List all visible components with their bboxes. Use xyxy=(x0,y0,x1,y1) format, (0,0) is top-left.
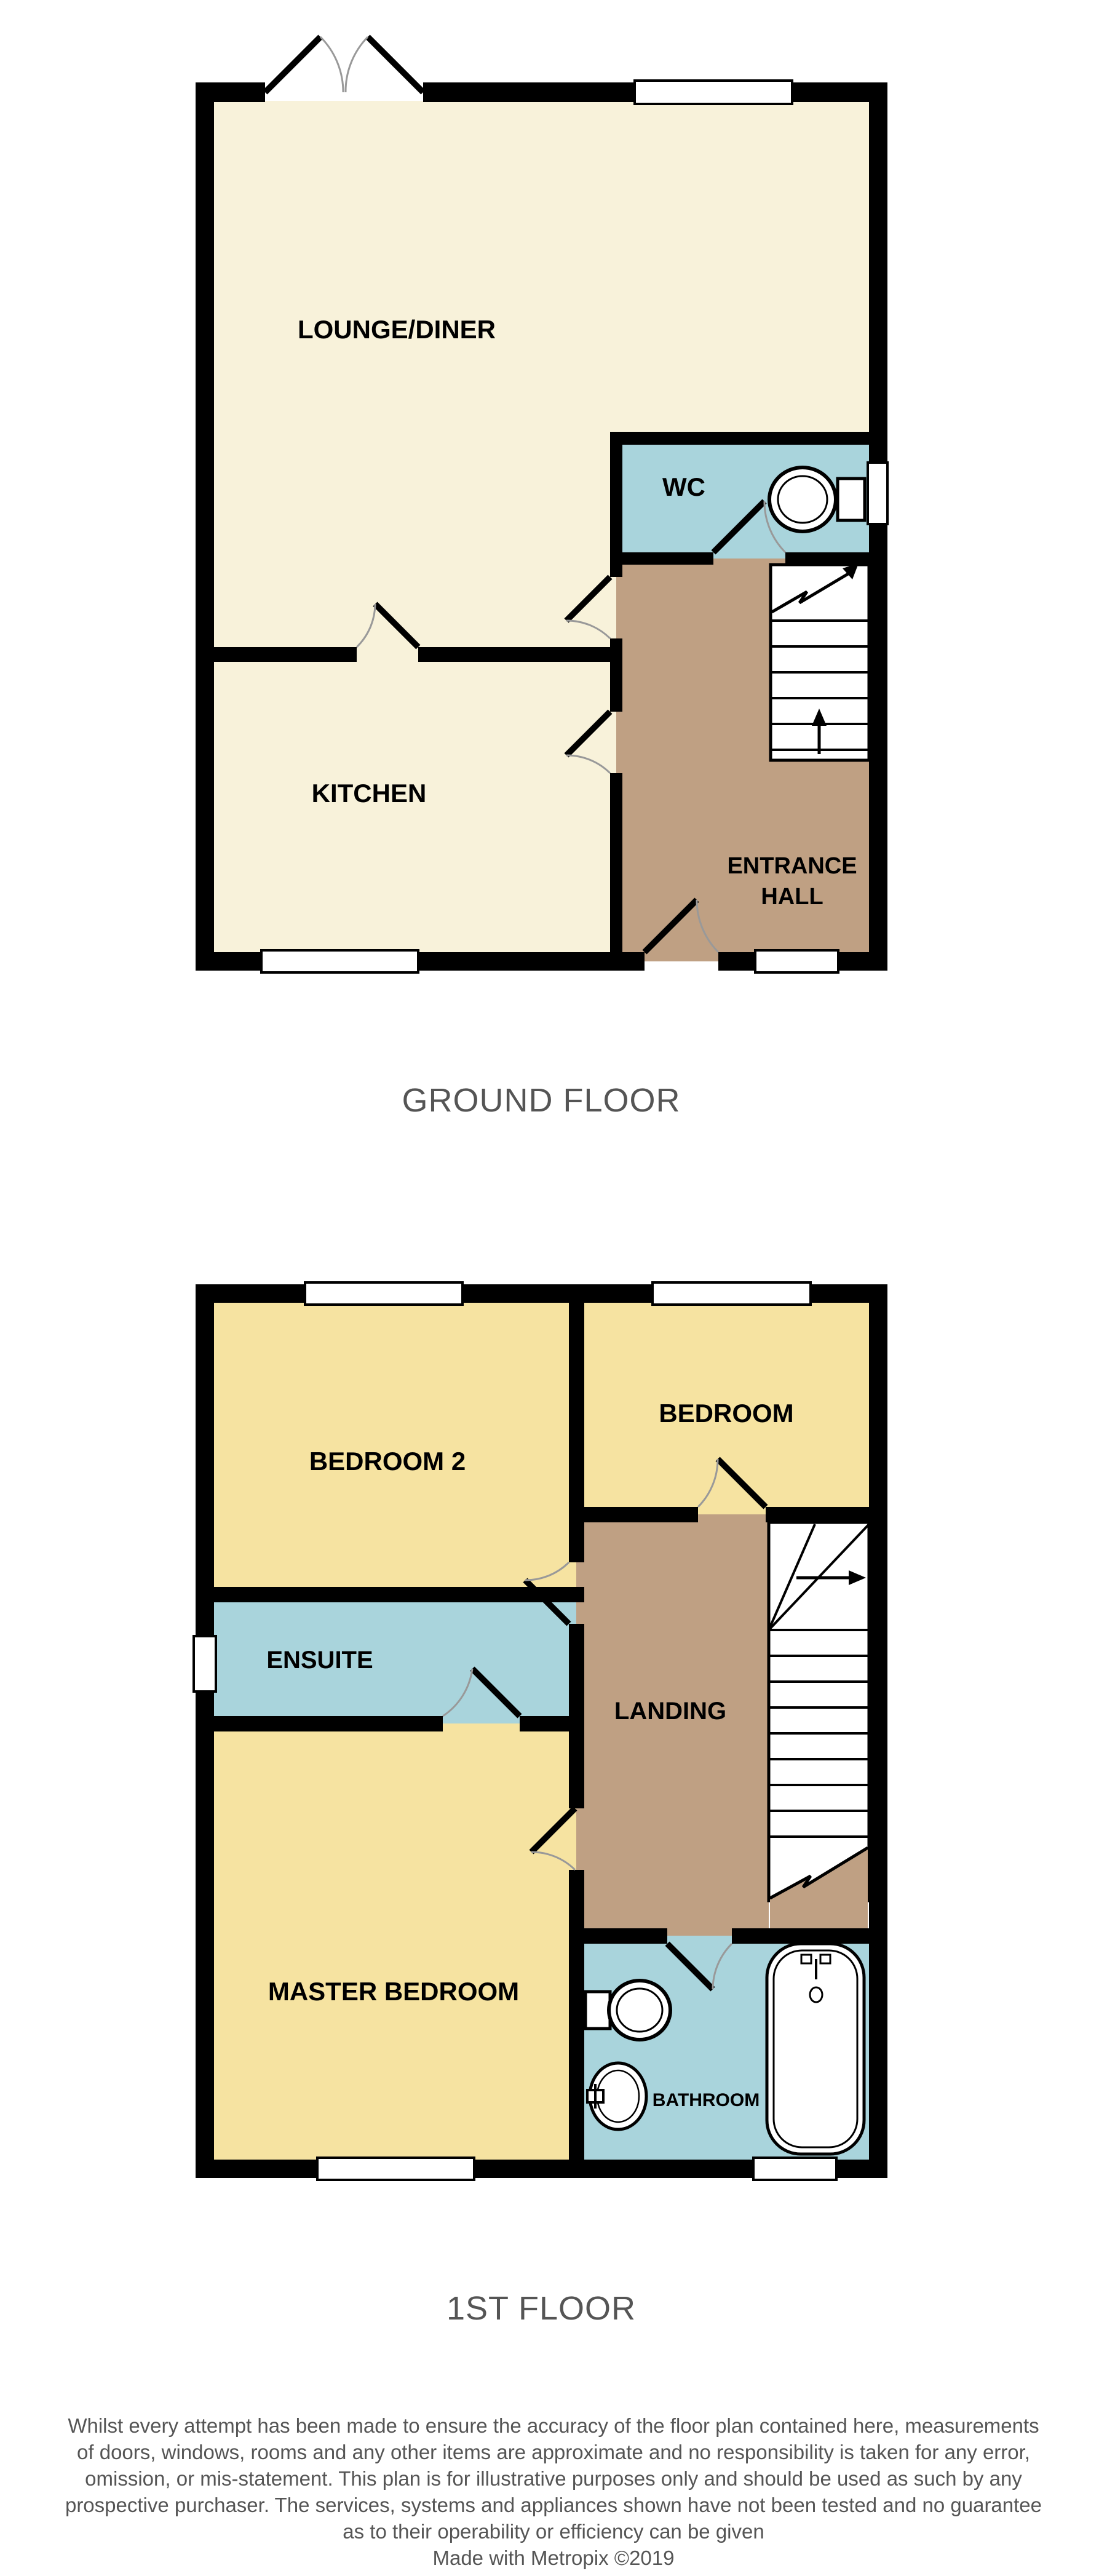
disclaimer-line: omission, or mis-statement. This plan is… xyxy=(0,2465,1107,2492)
label-bathroom: BATHROOM xyxy=(653,2090,760,2110)
disclaimer-text: Whilst every attempt has been made to en… xyxy=(0,2412,1107,2571)
label-lounge-diner: LOUNGE/DINER xyxy=(298,315,496,344)
window-hall-bottom xyxy=(755,950,838,972)
window-master-bottom xyxy=(317,2158,474,2180)
label-wc: WC xyxy=(662,472,705,501)
label-landing: LANDING xyxy=(614,1698,726,1725)
room-kitchen-floor xyxy=(214,654,616,961)
door-french-left xyxy=(265,37,343,92)
label-kitchen: KITCHEN xyxy=(312,779,427,808)
first-floor-plan: BEDROOM 2 BEDROOM ENSUITE LANDING MASTER… xyxy=(194,1282,887,2180)
label-bedroom: BEDROOM xyxy=(659,1399,793,1428)
bath-icon xyxy=(767,1944,864,2154)
window-bathroom-bottom xyxy=(753,2158,836,2180)
metropix-credit: Made with Metropix ©2019 xyxy=(0,2545,1107,2571)
window-bedroom2-top xyxy=(305,1282,462,1305)
first-floor-caption: 1ST FLOOR xyxy=(12,2289,1070,2328)
door-french-right xyxy=(346,37,423,92)
first-floor-stairs xyxy=(769,1522,869,1936)
disclaimer-line: of doors, windows, rooms and any other i… xyxy=(0,2439,1107,2465)
window-kitchen-bottom xyxy=(261,950,418,972)
disclaimer-line: as to their operability or efficiency ca… xyxy=(0,2518,1107,2545)
window-bedroom-top xyxy=(653,1282,811,1305)
ground-floor-stairs xyxy=(771,563,869,760)
toilet-icon xyxy=(769,467,865,531)
window-wc-right xyxy=(868,463,887,524)
disclaimer-line: prospective purchaser. The services, sys… xyxy=(0,2492,1107,2518)
room-landing-floor xyxy=(576,1514,769,1936)
disclaimer-line: Whilst every attempt has been made to en… xyxy=(0,2412,1107,2439)
room-master-bedroom-floor xyxy=(214,1723,576,2169)
label-master-bedroom: MASTER BEDROOM xyxy=(268,1977,519,2006)
window-ensuite-left xyxy=(194,1636,216,1691)
label-entrance-hall-line2: HALL xyxy=(761,884,823,910)
room-lounge-diner-floor-lower xyxy=(214,101,616,654)
ground-floor-caption: GROUND FLOOR xyxy=(12,1081,1070,1119)
sink-icon xyxy=(587,2063,646,2129)
floor-plan-canvas: LOUNGE/DINER WC KITCHEN ENTRANCE HALL xyxy=(0,0,1107,2576)
label-bedroom2: BEDROOM 2 xyxy=(309,1447,466,1476)
label-ensuite: ENSUITE xyxy=(266,1647,373,1674)
ground-floor-plan: LOUNGE/DINER WC KITCHEN ENTRANCE HALL xyxy=(196,37,887,972)
label-entrance-hall-line1: ENTRANCE xyxy=(727,853,857,879)
window-lounge-top xyxy=(635,81,792,104)
